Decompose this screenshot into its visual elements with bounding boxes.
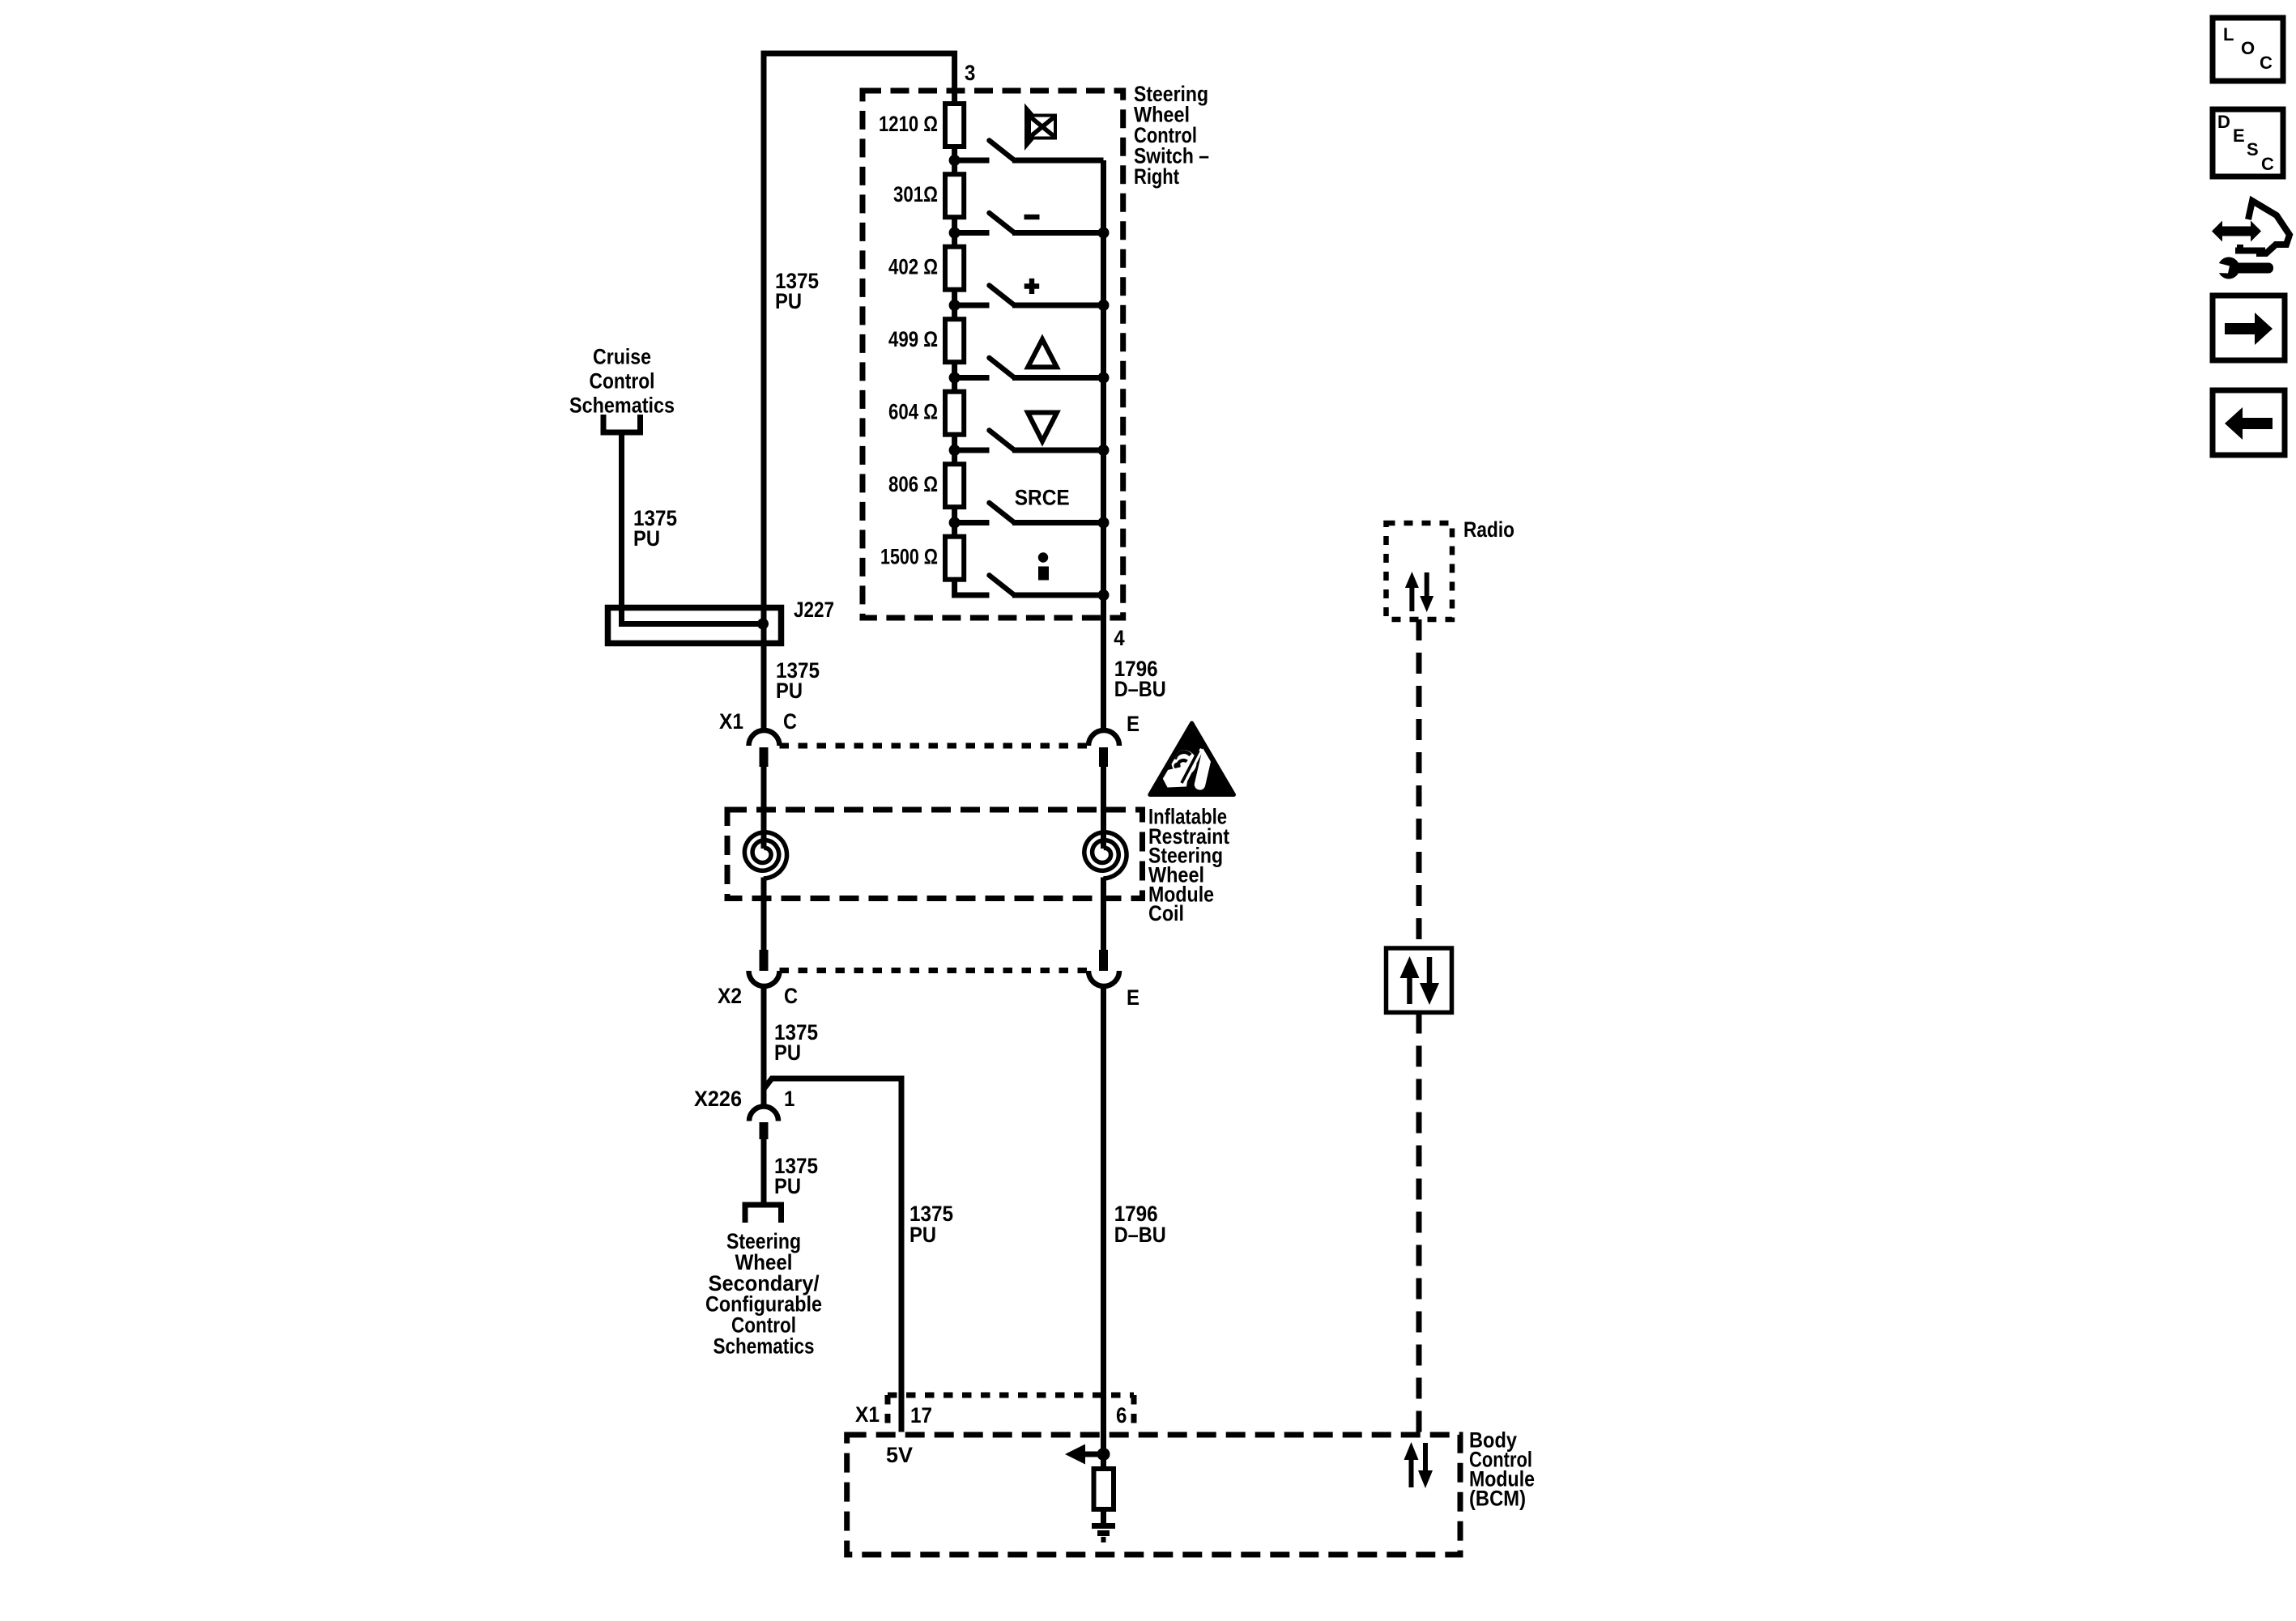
svg-text:O: O — [2241, 38, 2255, 58]
svg-text:E: E — [1127, 985, 1139, 1010]
svg-text:PU: PU — [909, 1223, 936, 1247]
svg-text:301Ω: 301Ω — [893, 182, 938, 206]
svg-text:(BCM): (BCM) — [1469, 1487, 1526, 1511]
svg-text:Radio: Radio — [1463, 517, 1514, 542]
svg-text:E: E — [1127, 712, 1139, 736]
svg-text:Coil: Coil — [1148, 901, 1184, 925]
svg-text:Schematics: Schematics — [714, 1334, 815, 1359]
svg-text:L: L — [2223, 24, 2234, 45]
svg-text:402 Ω: 402 Ω — [888, 255, 938, 279]
svg-text:Schematics: Schematics — [569, 394, 675, 418]
svg-text:6: 6 — [1116, 1403, 1127, 1427]
svg-text:X2: X2 — [718, 984, 742, 1008]
svg-text:J227: J227 — [794, 598, 834, 622]
svg-text:PU: PU — [774, 1040, 801, 1065]
svg-text:17: 17 — [910, 1403, 932, 1427]
svg-text:X226: X226 — [694, 1087, 742, 1111]
svg-text:X1: X1 — [855, 1402, 880, 1427]
svg-text:1210 Ω: 1210 Ω — [879, 112, 938, 136]
svg-text:499 Ω: 499 Ω — [888, 327, 938, 351]
svg-text:1500 Ω: 1500 Ω — [880, 545, 938, 569]
svg-text:E: E — [2233, 126, 2245, 146]
svg-text:Control: Control — [590, 369, 655, 394]
svg-text:5V: 5V — [886, 1443, 913, 1467]
svg-text:SRCE: SRCE — [1015, 486, 1070, 510]
svg-text:S: S — [2247, 139, 2259, 160]
svg-text:PU: PU — [776, 679, 803, 703]
svg-text:604 Ω: 604 Ω — [888, 400, 938, 424]
svg-text:X1: X1 — [719, 709, 743, 734]
svg-text:3: 3 — [965, 61, 975, 85]
svg-text:C: C — [2261, 154, 2274, 174]
svg-text:D: D — [2217, 112, 2230, 132]
svg-text:D–BU: D–BU — [1114, 677, 1166, 701]
svg-text:C: C — [784, 984, 798, 1008]
svg-text:Right: Right — [1134, 164, 1179, 189]
svg-text:D–BU: D–BU — [1114, 1223, 1166, 1247]
svg-text:4: 4 — [1114, 626, 1124, 650]
svg-text:C: C — [783, 709, 797, 734]
svg-text:806 Ω: 806 Ω — [888, 472, 938, 496]
svg-text:1: 1 — [784, 1087, 794, 1111]
svg-text:PU: PU — [774, 1174, 801, 1198]
svg-text:Cruise: Cruise — [593, 345, 651, 369]
svg-text:PU: PU — [775, 289, 802, 313]
svg-text:PU: PU — [633, 526, 660, 551]
svg-text:C: C — [2260, 53, 2273, 73]
